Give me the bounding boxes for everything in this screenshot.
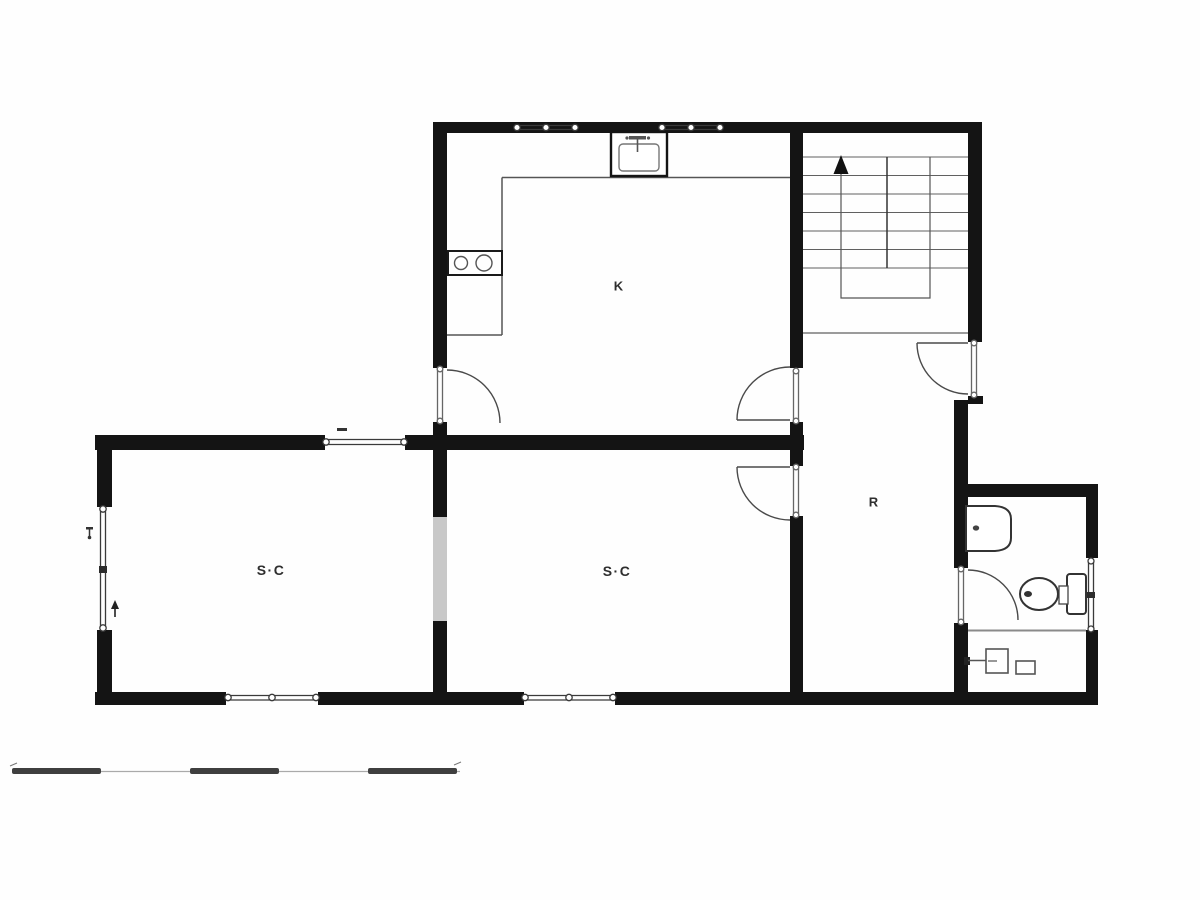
stair-walk-line	[841, 157, 930, 298]
door-swing-bathroom	[968, 570, 1018, 620]
kitchen-fixtures	[447, 132, 790, 335]
exterior-mark	[86, 527, 93, 539]
wall-middle-west	[95, 435, 325, 450]
stair-treads	[803, 157, 968, 268]
door-leaf-room2	[793, 464, 799, 518]
floor-plan-drawing	[0, 0, 1200, 900]
wall-kitchen-right-lower	[790, 516, 803, 692]
wash-basin	[966, 506, 1011, 551]
door-swing-room2	[737, 467, 790, 520]
window-room1-left	[99, 506, 107, 631]
wall-stair-right	[968, 122, 982, 342]
wall-bottom-1	[95, 692, 226, 705]
room-label-room1: S·C	[257, 562, 286, 578]
appliance-rect	[1016, 661, 1035, 674]
door-swing-kitchen-left	[447, 370, 500, 423]
door-leaf-stair-entrance	[971, 340, 977, 398]
door-swings	[447, 343, 1018, 620]
room-label-room2: S·C	[603, 563, 632, 579]
wall-bath-right-lower	[1086, 630, 1098, 705]
wall-kitchen-right-mid	[790, 422, 803, 466]
toilet	[1020, 574, 1086, 614]
window-room2-bottom	[522, 694, 616, 700]
wall-bottom-2	[318, 692, 524, 705]
wall-bottom-3	[615, 692, 1098, 705]
door-leaf-bathroom	[958, 566, 964, 625]
floor-plan-page: K S·C S·C R	[0, 0, 1200, 900]
wall-bath-top	[968, 484, 1098, 497]
window-tick-mark	[337, 428, 347, 431]
wall-kitchen-right-upper	[790, 122, 803, 368]
wall-middle-center	[405, 435, 448, 450]
scale-bar	[10, 762, 461, 774]
basin-drain-icon	[973, 525, 979, 530]
door-leaves	[437, 340, 977, 625]
wall-room-divider-upper	[433, 450, 447, 517]
kitchen-sink	[611, 132, 667, 176]
wall-room-divider-lower	[433, 621, 447, 692]
entrance-arrow-icon	[111, 600, 119, 617]
walls	[95, 122, 1098, 705]
window-room1-bottom	[225, 694, 319, 700]
room-label-kitchen: K	[614, 279, 624, 294]
bathroom-fixtures	[964, 506, 1086, 674]
annotation-marks	[86, 428, 347, 617]
staircase	[803, 155, 968, 333]
wall-kitchen-left-upper	[433, 122, 447, 368]
wall-bath-right-upper	[1086, 490, 1098, 558]
toilet-flush-icon	[1024, 591, 1032, 597]
stair-up-arrow-icon	[834, 155, 849, 174]
room-label-hall: R	[869, 495, 879, 510]
wall-left-upper	[97, 435, 112, 507]
window-room1-top	[323, 439, 407, 445]
window-bathroom-right	[1087, 558, 1095, 632]
utility-fixtures	[964, 649, 1035, 674]
stove	[448, 251, 502, 275]
door-leaf-kitchen-left	[437, 366, 443, 424]
door-leaf-kitchen-right	[793, 368, 799, 424]
door-swing-kitchen-right	[737, 367, 790, 420]
windows	[99, 124, 1095, 700]
door-swing-stair-entrance	[917, 343, 968, 394]
wall-middle-east	[448, 435, 804, 450]
cased-opening	[433, 517, 447, 621]
